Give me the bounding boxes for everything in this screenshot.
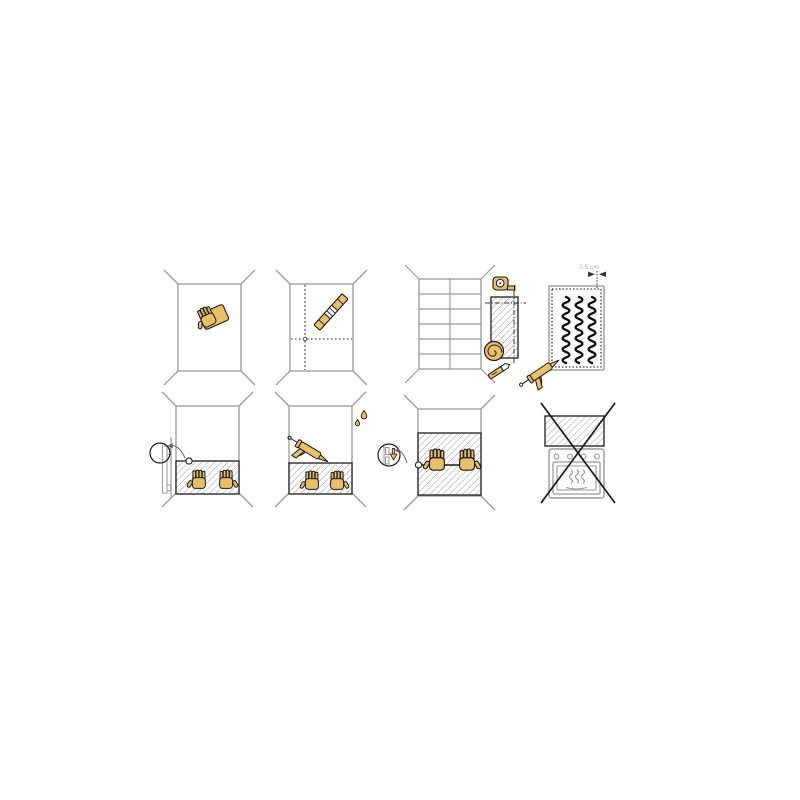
tape-measure-icon: [493, 277, 515, 291]
step-3-measure-cut: [405, 265, 526, 383]
utility-knife-icon: [488, 362, 511, 379]
step-1-clean-wall: [164, 270, 255, 385]
step-8-no-stove: [541, 403, 615, 503]
detail-marker-circle: [186, 458, 192, 464]
step-4-apply-adhesive: 0,5 cm: [518, 264, 606, 397]
tiled-wall: [405, 265, 495, 383]
detail-marker-circle: [415, 462, 421, 468]
instruction-diagram: 0,5 cm: [0, 0, 800, 800]
water-drop-icon: [355, 420, 359, 426]
water-drops: [355, 411, 366, 426]
instruction-sheet: 0,5 cm: [0, 0, 800, 800]
gap-measurement-label: 0,5 cm: [579, 264, 599, 271]
joint-profile-detail: [378, 444, 400, 466]
water-drop-icon: [361, 411, 367, 419]
step-5-press-panel: [150, 392, 253, 507]
step-6-seal-edge: [275, 392, 367, 507]
step-2-mark-guides: [276, 270, 367, 385]
guide-intersection-dot: [303, 337, 307, 341]
gap-arrow-left-icon: [599, 272, 606, 277]
coil-icon: [485, 342, 504, 361]
gap-dimension: 0,5 cm: [579, 264, 606, 289]
gap-arrow-right-icon: [588, 272, 595, 277]
step-7-join-panels: [378, 395, 495, 510]
